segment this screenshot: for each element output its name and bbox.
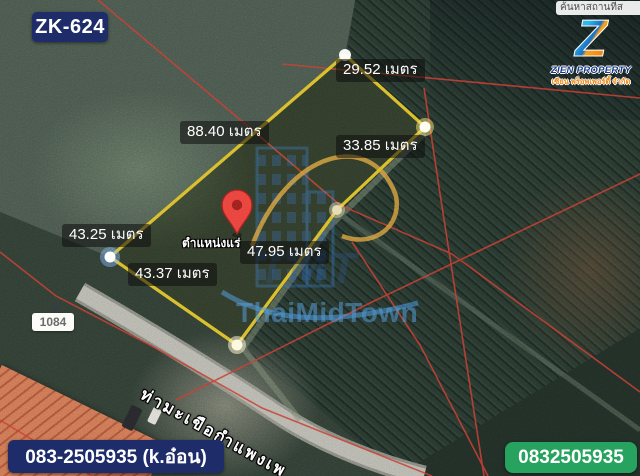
brand-name-thai: เซียน พร็อพเพอร์ตี้ จำกัด: [544, 76, 638, 88]
listing-code-badge: ZK-624: [32, 12, 108, 42]
measure-left: 43.25 เมตร: [62, 224, 151, 247]
measure-top: 29.52 เมตร: [336, 59, 425, 82]
land-listing-image: TMT ThaiMidTown 29.52 เมตร 88.40 เมตร 33…: [0, 0, 640, 476]
measure-upper-left: 88.40 เมตร: [180, 121, 269, 144]
route-number-sign: 1084: [32, 313, 74, 331]
pin-caption: ตำแหน่งแร่: [182, 234, 240, 253]
measure-upper-right: 33.85 เมตร: [336, 135, 425, 158]
brand-name: ZIEN PROPERTY: [544, 65, 638, 76]
company-logo: Z ZIEN PROPERTY เซียน พร็อพเพอร์ตี้ จำกั…: [544, 10, 638, 88]
measure-center: 47.95 เมตร: [240, 241, 329, 264]
z-logo-icon: Z: [544, 10, 638, 66]
phone-number-secondary: 0832505935: [505, 442, 637, 473]
watermark-name: ThaiMidTown: [236, 297, 418, 329]
phone-number-primary: 083-2505935 (k.อ๋อน): [8, 440, 224, 473]
measure-lower-left: 43.37 เมตร: [128, 263, 217, 286]
z-logo-letter: Z: [573, 10, 609, 66]
